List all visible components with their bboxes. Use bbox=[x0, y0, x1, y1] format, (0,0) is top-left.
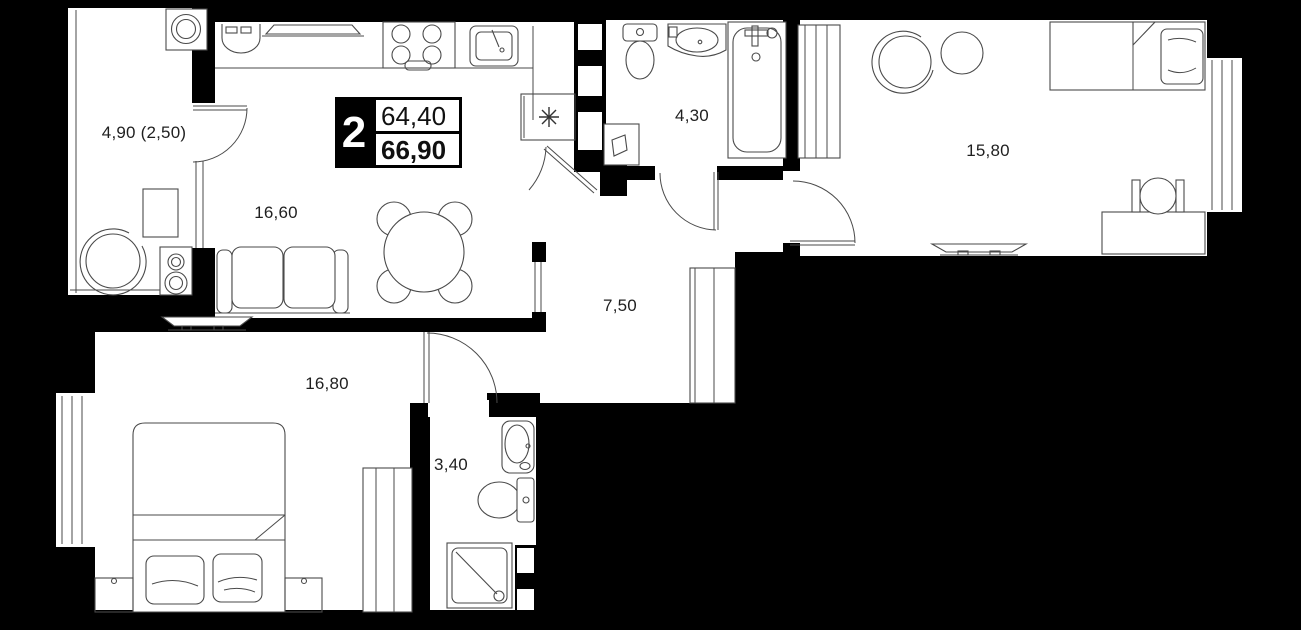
desk-chair-icon bbox=[1132, 178, 1184, 214]
hall-furniture bbox=[690, 268, 735, 403]
hall-wardrobe-icon bbox=[690, 268, 735, 403]
floor-plan[interactable]: 4,90 (2,50) 16,60 4,30 15,80 7,50 16,80 … bbox=[0, 0, 1301, 630]
room-area-label-balcony: 4,90 (2,50) bbox=[102, 123, 186, 143]
single-bed-icon bbox=[1050, 22, 1205, 90]
rooms-count: 2 bbox=[335, 97, 373, 168]
shower-icon bbox=[447, 543, 512, 608]
speaker-icon bbox=[160, 247, 192, 295]
bathroom-cabinet-icon bbox=[604, 124, 639, 165]
vent-shaft-5 bbox=[517, 589, 534, 610]
washing-machine-icon bbox=[166, 9, 207, 50]
vent-shaft-1 bbox=[578, 24, 602, 50]
vent-shaft-2 bbox=[578, 66, 602, 96]
bathtub-icon bbox=[728, 22, 786, 158]
room-area-label-bathroom: 4,30 bbox=[675, 106, 709, 126]
room-area-label-bedroom-left: 16,80 bbox=[305, 374, 349, 394]
vent-shaft-3 bbox=[578, 112, 602, 150]
area-bottom: 66,90 bbox=[376, 134, 459, 165]
apartment-info-badge: 2 64,40 66,90 bbox=[335, 97, 462, 168]
area-top: 64,40 bbox=[376, 100, 459, 134]
sofa-icon bbox=[215, 247, 350, 313]
wardrobe-right-icon bbox=[798, 25, 840, 158]
side-table-icon bbox=[941, 32, 983, 74]
toilet-icon bbox=[623, 24, 657, 79]
appliance-asterisk-icon bbox=[539, 107, 559, 127]
area-values: 64,40 66,90 bbox=[373, 97, 462, 168]
dining-table-icon bbox=[377, 202, 472, 303]
window-left bbox=[56, 393, 95, 547]
balcony-door-opening bbox=[192, 103, 215, 161]
bathroom-door-opening bbox=[655, 166, 717, 180]
double-bed-icon bbox=[133, 423, 285, 612]
wardrobe-left-icon bbox=[363, 468, 412, 612]
pillow-icon bbox=[213, 554, 262, 602]
vent-shaft-4 bbox=[517, 548, 534, 573]
room-area-label-kitchen-living: 16,60 bbox=[254, 203, 298, 223]
room-area-label-hallway: 7,50 bbox=[603, 296, 637, 316]
wc-door-opening bbox=[428, 400, 489, 417]
floor-plan-canvas bbox=[0, 0, 1301, 630]
bedroom-right-door-opening bbox=[783, 171, 800, 243]
room-area-label-bedroom-right: 15,80 bbox=[966, 141, 1010, 161]
room-area-label-wc: 3,40 bbox=[434, 455, 468, 475]
window-right bbox=[1205, 58, 1242, 212]
wc-sink-icon bbox=[502, 421, 534, 473]
